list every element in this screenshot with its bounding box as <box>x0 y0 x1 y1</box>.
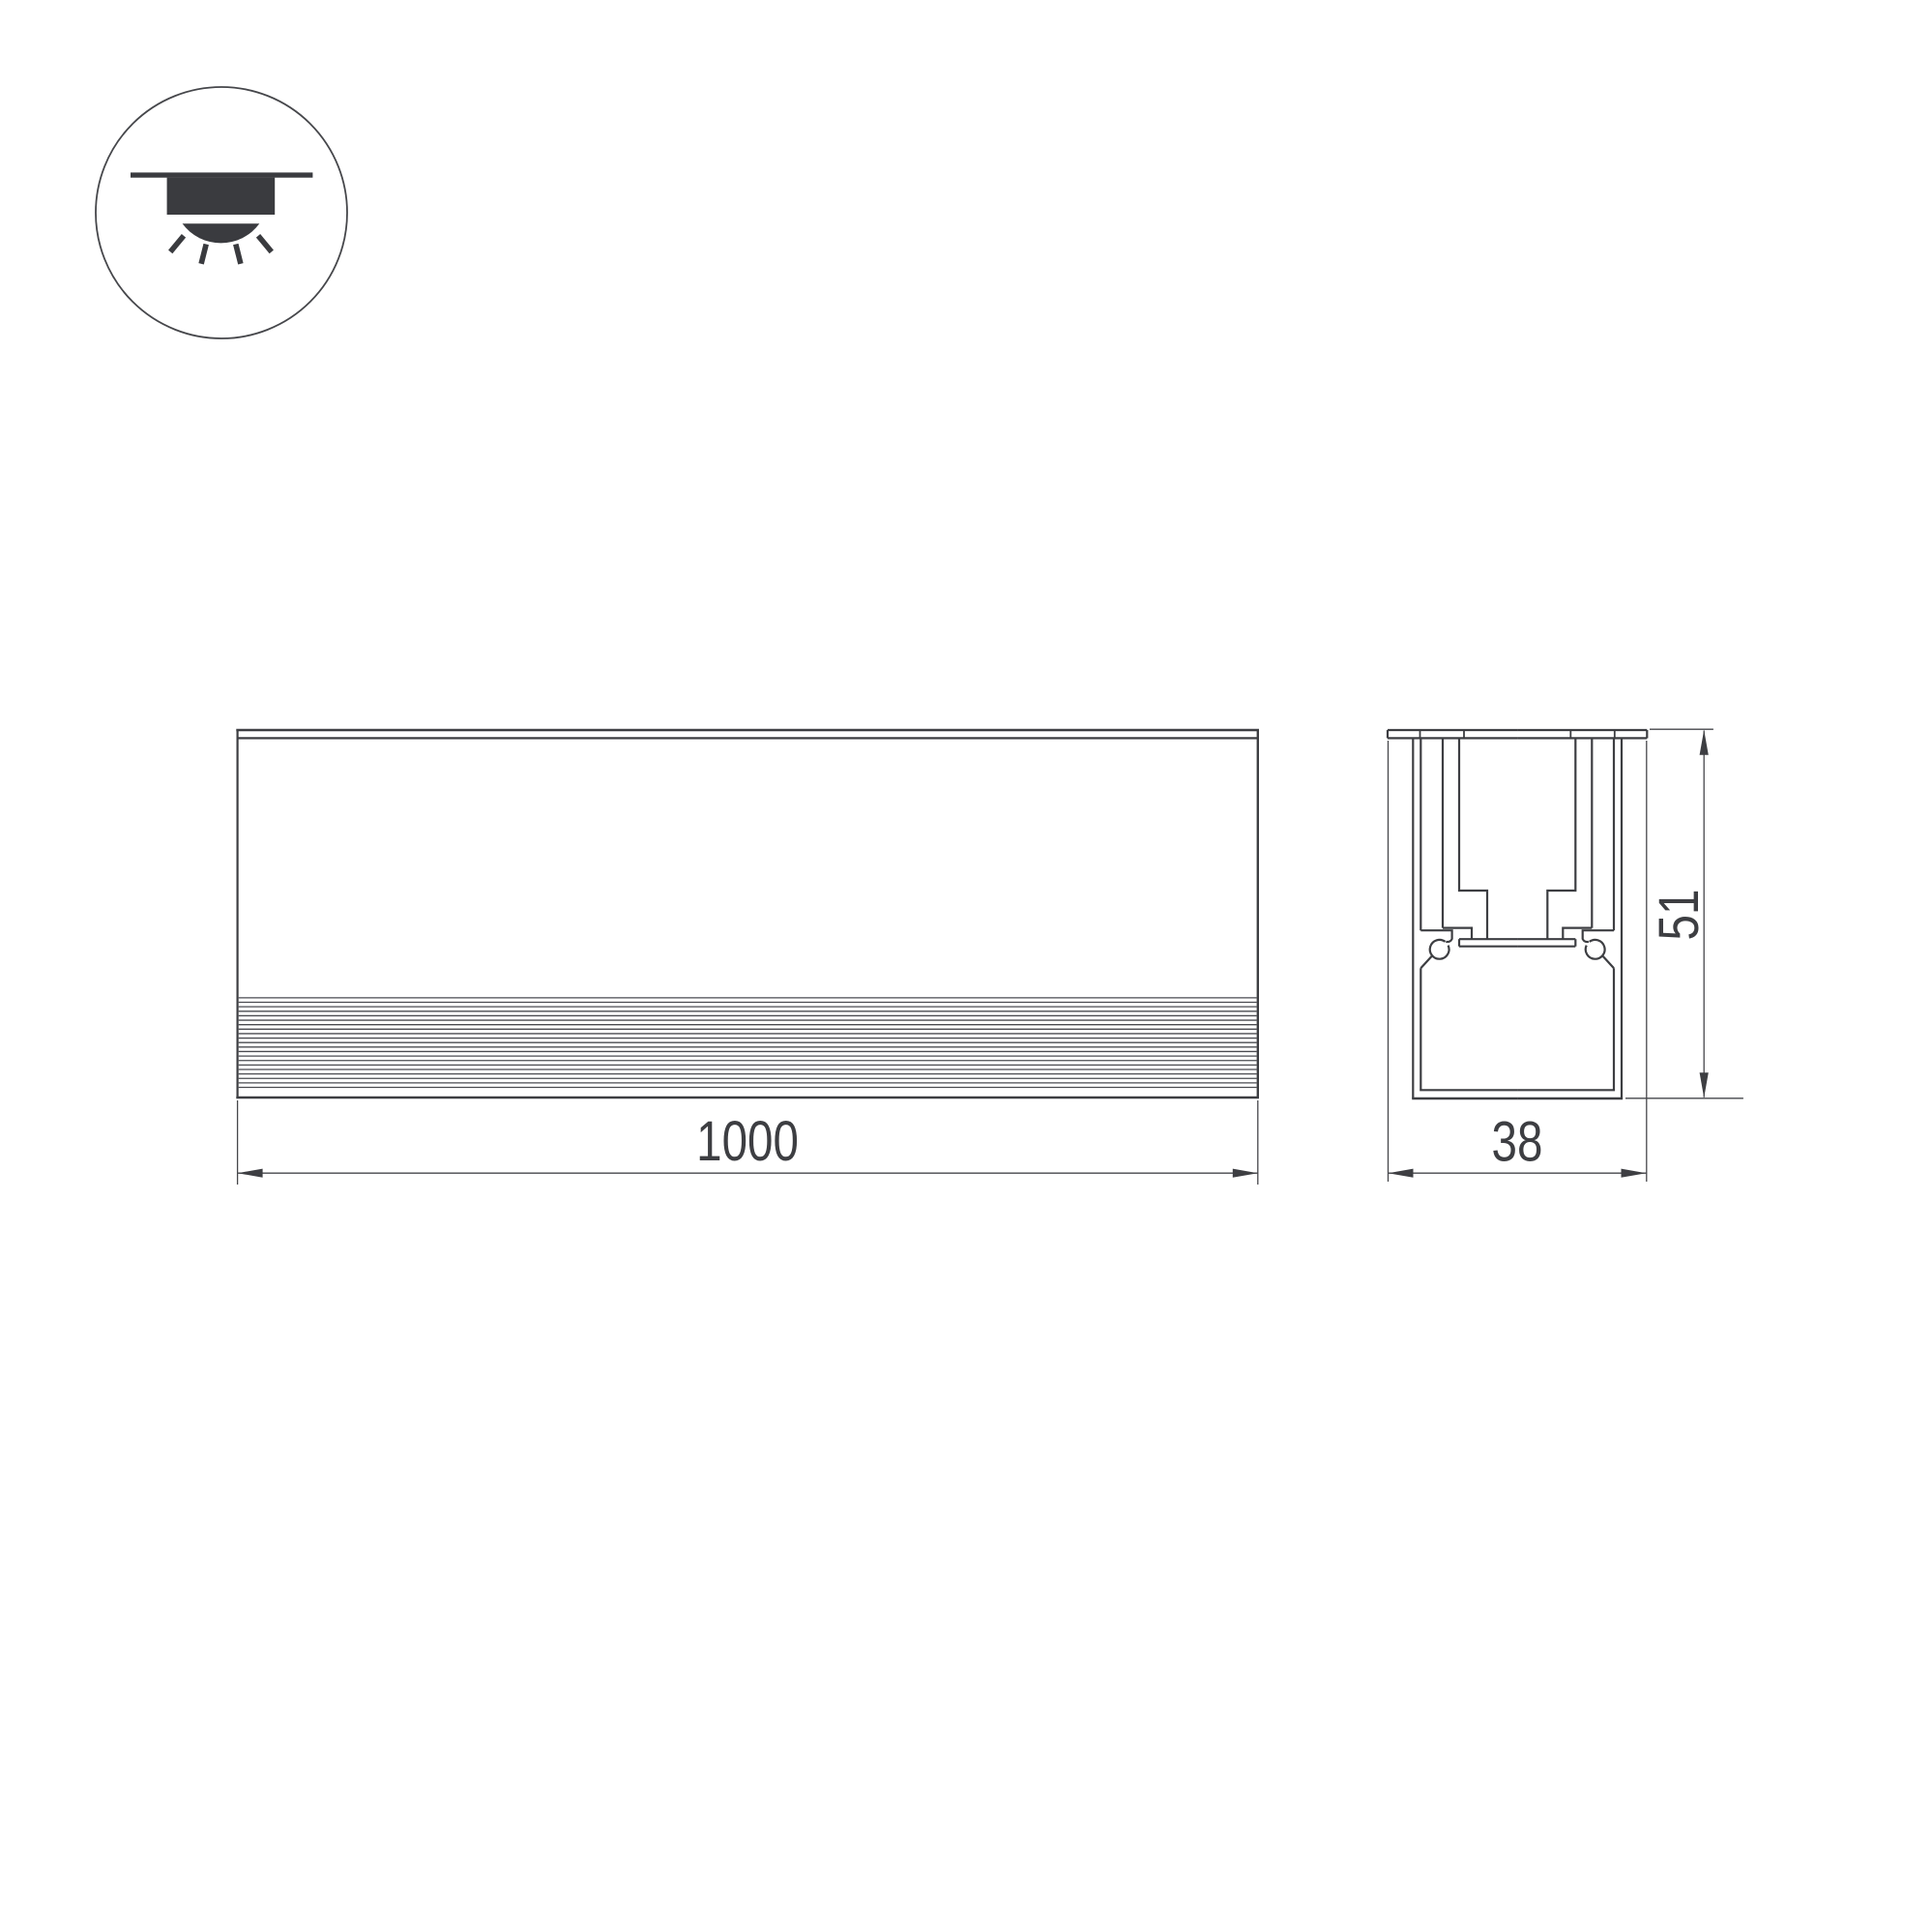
svg-text:51: 51 <box>1649 890 1712 941</box>
svg-text:38: 38 <box>1492 1111 1543 1174</box>
svg-text:1000: 1000 <box>696 1111 799 1174</box>
